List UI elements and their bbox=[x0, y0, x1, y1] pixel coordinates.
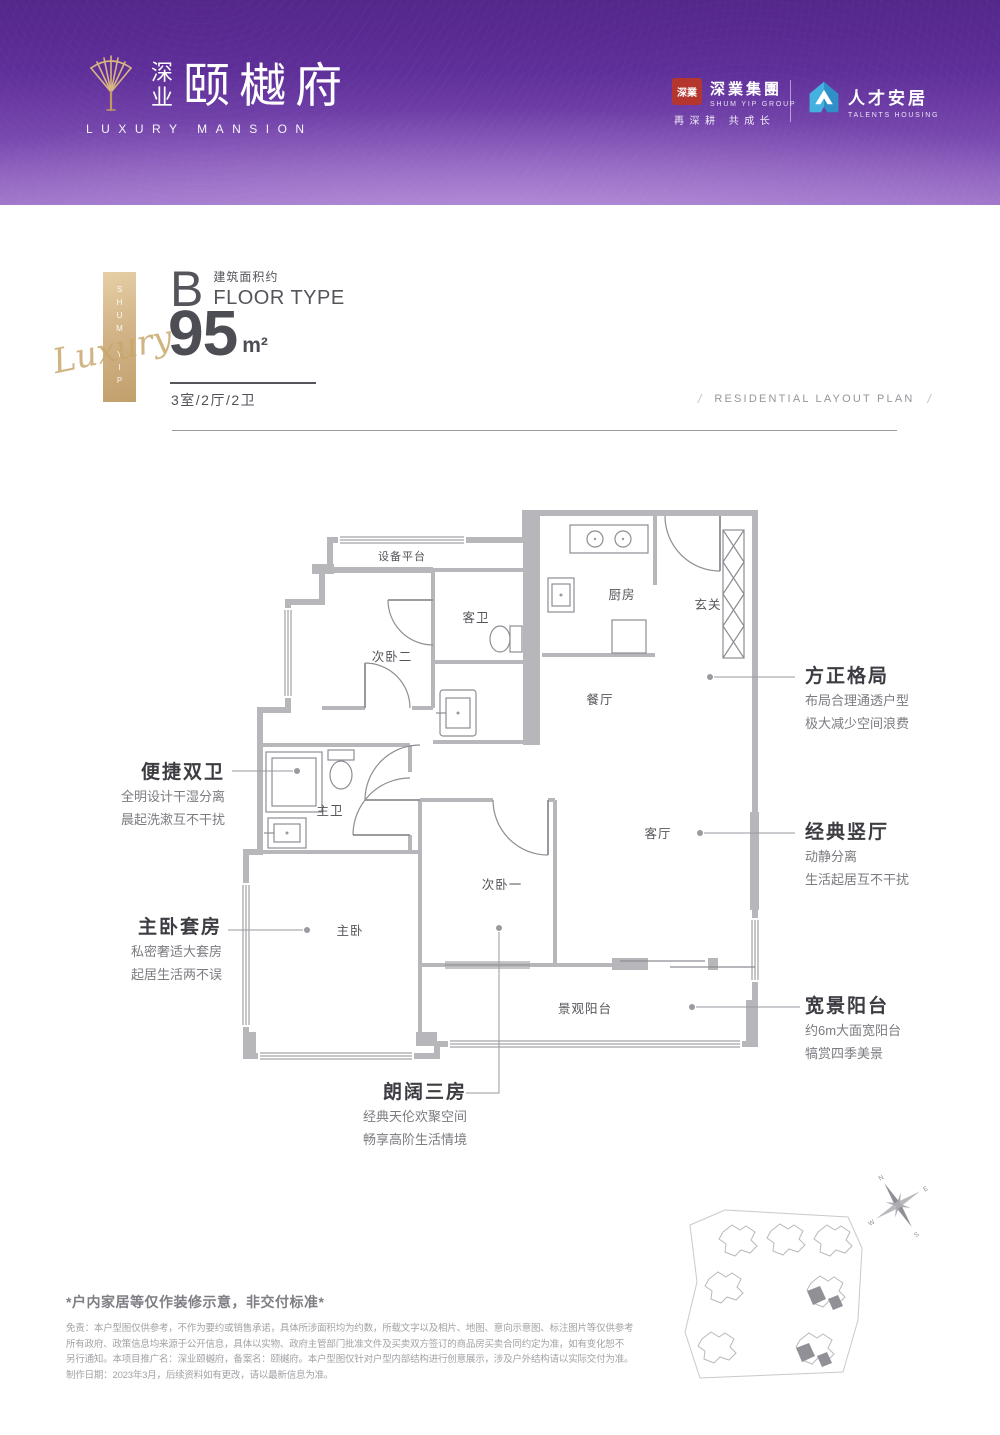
callout-line: 私密奢适大套房 bbox=[40, 941, 222, 962]
disclaimer-line: 免责：本户型图仅供参考，不作为要约或销售承诺，具体所涉面积均为约数，所载文字以及… bbox=[66, 1321, 633, 1337]
callout-master-suite: 主卧套房 私密奢适大套房 起居生活两不误 bbox=[40, 912, 222, 985]
callout-classic-hall: 经典竖厅 动静分离 生活起居互不干扰 bbox=[805, 817, 909, 890]
group-logo: 深業 深業集團 SHUM YIP GROUP bbox=[672, 78, 796, 108]
talents-logo: 人才安居 TALENTS HOUSING bbox=[808, 80, 939, 119]
right-wall-pier bbox=[750, 812, 759, 910]
callout-line: 极大减少空间浪费 bbox=[805, 713, 909, 734]
callout-title: 主卧套房 bbox=[40, 912, 222, 939]
fan-logo-icon bbox=[85, 52, 137, 118]
talents-name-en: TALENTS HOUSING bbox=[848, 112, 939, 119]
plan-caption-text: RESIDENTIAL LAYOUT PLAN bbox=[714, 393, 914, 405]
master-toilet-icon bbox=[328, 750, 354, 789]
group-seal-icon: 深業 bbox=[672, 78, 702, 105]
callout-title: 朗阔三房 bbox=[240, 1077, 467, 1104]
room-label-master-bath: 主卫 bbox=[316, 804, 343, 818]
brand-name: 颐樾府 bbox=[183, 62, 351, 109]
callout-line: 晨起洗漱互不干扰 bbox=[40, 809, 225, 830]
brand-prefix-char-bottom: 业 bbox=[151, 85, 173, 110]
compass-s: S bbox=[913, 1231, 921, 1240]
room-label-bedroom1: 次卧一 bbox=[482, 878, 523, 892]
room-labels: 设备平台 次卧二 客卫 厨房 玄关 餐厅 主卫 客厅 次卧一 主卧 景观阳台 bbox=[316, 549, 721, 1016]
fridge-icon bbox=[612, 620, 646, 653]
vanity-icon bbox=[436, 690, 476, 736]
slash-right: / bbox=[928, 392, 931, 406]
callout-line: 布局合理通透户型 bbox=[805, 690, 909, 711]
group-slogan: 再深耕 共成长 bbox=[674, 112, 775, 127]
header-divider bbox=[790, 80, 791, 122]
room-label-bedroom2: 次卧二 bbox=[372, 650, 413, 664]
plan-caption: / RESIDENTIAL LAYOUT PLAN / bbox=[698, 392, 931, 406]
callout-line: 生活起居互不干扰 bbox=[805, 869, 909, 890]
room-label-dining: 餐厅 bbox=[586, 692, 613, 707]
area-underline bbox=[170, 382, 316, 384]
bedroom-pier bbox=[244, 1032, 256, 1058]
header-banner: 深 业 颐樾府 LUXURY MANSION 深業 深業集團 SHUM YIP … bbox=[0, 0, 1000, 205]
wardrobe-icon bbox=[723, 530, 744, 658]
stove-icon bbox=[570, 525, 648, 553]
area-note: 建筑面积约 bbox=[213, 268, 344, 285]
callout-line: 约6m大面宽阳台 bbox=[805, 1020, 901, 1041]
master-sink-icon bbox=[264, 818, 306, 848]
compass-icon: N E S W bbox=[850, 1165, 945, 1257]
callout-title: 宽景阳台 bbox=[805, 991, 901, 1018]
brand-name-en: LUXURY MANSION bbox=[86, 122, 313, 136]
callout-three-rooms: 朗阔三房 经典天伦欢聚空间 畅享高阶生活情境 bbox=[240, 1077, 467, 1150]
callout-wide-balcony: 宽景阳台 约6m大面宽阳台 犒赏四季美景 bbox=[805, 991, 901, 1064]
callout-line: 起居生活两不误 bbox=[40, 964, 222, 985]
layout-spec: 3室/2厅/2卫 bbox=[171, 390, 256, 410]
disclaimer-title: *户内家居等仅作装修示意，非交付标准* bbox=[66, 1292, 633, 1312]
kitchen-sink-icon bbox=[548, 578, 574, 612]
brand-prefix: 深 业 bbox=[151, 60, 173, 111]
talents-name-cn: 人才安居 bbox=[848, 84, 939, 109]
site-plan: N E S W bbox=[655, 1165, 945, 1395]
callout-title: 方正格局 bbox=[805, 661, 909, 688]
room-label-guest-bath: 客卫 bbox=[462, 610, 489, 625]
site-buildings bbox=[698, 1224, 852, 1364]
room-label-equipment: 设备平台 bbox=[378, 549, 426, 563]
brand-prefix-char-top: 深 bbox=[151, 60, 173, 85]
compass-w: W bbox=[867, 1218, 877, 1228]
disclaimer-line: 所有政府、政策信息均来源于公开信息，具体以实物、政府主管部门批准文件及买卖双方签… bbox=[66, 1337, 633, 1353]
callout-title: 经典竖厅 bbox=[805, 817, 909, 844]
callout-dual-bath: 便捷双卫 全明设计干湿分离 晨起洗漱互不干扰 bbox=[40, 757, 225, 830]
callout-line: 经典天伦欢聚空间 bbox=[240, 1106, 467, 1127]
compass-e: E bbox=[922, 1185, 930, 1194]
brand-logo-group: 深 业 颐樾府 bbox=[85, 50, 351, 120]
disclaimer-line: 制作日期：2023年3月，后续资料如有更改，请以最新信息为准。 bbox=[66, 1368, 633, 1384]
room-label-kitchen: 厨房 bbox=[608, 587, 635, 602]
room-label-foyer: 玄关 bbox=[694, 597, 721, 612]
area-unit: m² bbox=[242, 334, 268, 358]
callout-line: 犒赏四季美景 bbox=[805, 1043, 901, 1064]
guest-toilet-icon bbox=[490, 626, 522, 652]
poster-page: 深 业 颐樾府 LUXURY MANSION 深業 深業集團 SHUM YIP … bbox=[0, 0, 1000, 1435]
callout-line: 畅享高阶生活情境 bbox=[240, 1129, 467, 1150]
disclaimer: *户内家居等仅作装修示意，非交付标准* 免责：本户型图仅供参考，不作为要约或销售… bbox=[66, 1292, 633, 1383]
callout-title: 便捷双卫 bbox=[40, 757, 225, 784]
callout-square-layout: 方正格局 布局合理通透户型 极大减少空间浪费 bbox=[805, 661, 909, 734]
group-name-cn: 深業集團 bbox=[710, 78, 796, 99]
balcony-pier-2 bbox=[708, 958, 718, 970]
callout-line: 全明设计干湿分离 bbox=[40, 786, 225, 807]
area-value-block: 95 m² bbox=[168, 306, 268, 360]
room-label-balcony: 景观阳台 bbox=[558, 1001, 612, 1016]
compass-n: N bbox=[877, 1174, 885, 1183]
shower-icon bbox=[266, 752, 322, 812]
area-value: 95 bbox=[168, 306, 237, 360]
room-label-living: 客厅 bbox=[644, 826, 671, 841]
dining-wall bbox=[523, 516, 540, 745]
section-divider bbox=[172, 430, 897, 431]
callout-line: 动静分离 bbox=[805, 846, 909, 867]
disclaimer-line: 另行通知。本项目推广名：深业颐樾府，备案名：颐樾府。本户型图仅针对户型内部结构进… bbox=[66, 1352, 633, 1368]
room-label-master-bedroom: 主卧 bbox=[336, 924, 363, 938]
group-name-en: SHUM YIP GROUP bbox=[710, 101, 796, 108]
slash-left: / bbox=[698, 392, 701, 406]
talents-house-icon bbox=[808, 80, 840, 114]
